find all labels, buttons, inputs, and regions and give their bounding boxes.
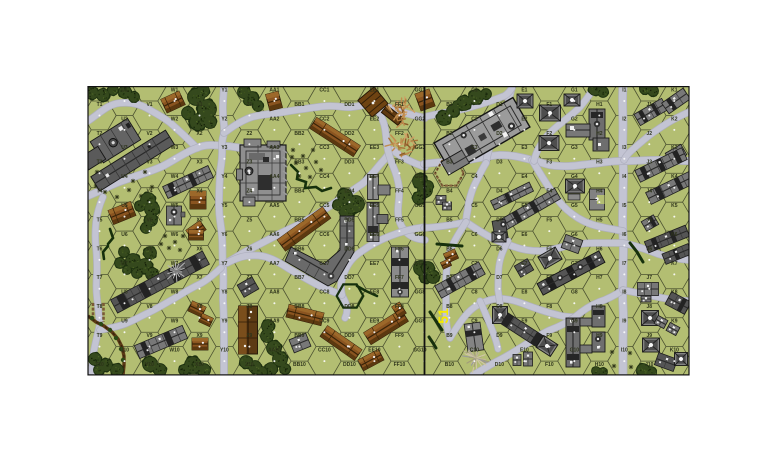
svg-text:AA8: AA8 <box>269 290 279 296</box>
svg-text:B6: B6 <box>446 246 453 252</box>
svg-text:W10: W10 <box>169 348 180 354</box>
svg-text:CC3: CC3 <box>319 145 329 151</box>
svg-text:EE8: EE8 <box>370 290 380 296</box>
svg-text:E5: E5 <box>521 203 527 209</box>
svg-text:Z4: Z4 <box>246 189 252 195</box>
svg-text:U5: U5 <box>121 203 128 209</box>
svg-text:EE4: EE4 <box>370 174 380 180</box>
svg-text:FF10: FF10 <box>394 362 406 368</box>
svg-text:X3: X3 <box>196 160 202 166</box>
svg-text:EE9: EE9 <box>370 319 380 325</box>
svg-text:U1: U1 <box>121 87 128 93</box>
svg-text:FF5: FF5 <box>395 218 404 224</box>
svg-text:Z1: Z1 <box>246 102 252 108</box>
svg-text:DD9: DD9 <box>344 333 354 339</box>
svg-text:E1: E1 <box>521 87 527 93</box>
svg-text:K2: K2 <box>671 116 678 122</box>
svg-text:E8: E8 <box>521 290 527 296</box>
svg-text:I8: I8 <box>622 290 626 296</box>
svg-text:AA10: AA10 <box>268 348 281 354</box>
svg-text:FF3: FF3 <box>395 160 404 166</box>
svg-text:F5: F5 <box>546 218 552 224</box>
svg-text:E10: E10 <box>520 348 529 354</box>
svg-text:BB9: BB9 <box>294 333 304 339</box>
svg-text:V5: V5 <box>146 218 152 224</box>
svg-text:D5: D5 <box>496 218 503 224</box>
svg-text:E6: E6 <box>521 232 527 238</box>
svg-text:EE3: EE3 <box>370 145 380 151</box>
svg-text:Y3: Y3 <box>221 145 227 151</box>
svg-text:G10: G10 <box>570 348 580 354</box>
svg-text:T2: T2 <box>97 131 103 137</box>
svg-text:U8: U8 <box>121 290 128 296</box>
svg-text:BB3: BB3 <box>294 160 304 166</box>
svg-text:W3: W3 <box>171 145 179 151</box>
svg-text:AA5: AA5 <box>269 203 279 209</box>
svg-text:I3: I3 <box>622 145 626 151</box>
svg-text:W7: W7 <box>171 261 179 267</box>
svg-text:T3: T3 <box>97 160 103 166</box>
svg-text:G6: G6 <box>571 232 578 238</box>
svg-text:X7: X7 <box>196 275 202 281</box>
svg-text:T5: T5 <box>97 218 103 224</box>
svg-text:F9: F9 <box>546 333 552 339</box>
svg-text:J6: J6 <box>647 246 653 252</box>
svg-text:D9: D9 <box>496 333 503 339</box>
svg-text:AA1: AA1 <box>269 87 279 93</box>
svg-text:F8: F8 <box>546 304 552 310</box>
svg-text:H3: H3 <box>596 160 603 166</box>
svg-text:I5: I5 <box>622 203 626 209</box>
svg-text:E7: E7 <box>521 261 527 267</box>
svg-text:Y6: Y6 <box>221 232 227 238</box>
svg-text:X4: X4 <box>196 189 202 195</box>
svg-text:K4: K4 <box>671 174 678 180</box>
svg-text:U7: U7 <box>121 261 128 267</box>
svg-text:EE2: EE2 <box>370 116 380 122</box>
svg-text:T1: T1 <box>97 102 103 108</box>
svg-text:BB7: BB7 <box>294 275 304 281</box>
svg-text:K1: K1 <box>671 87 678 93</box>
svg-text:DD5: DD5 <box>344 218 354 224</box>
svg-text:C9: C9 <box>471 319 478 325</box>
svg-text:K9: K9 <box>671 319 678 325</box>
svg-text:K5: K5 <box>671 203 678 209</box>
svg-text:Y10: Y10 <box>220 348 229 354</box>
svg-text:Z6: Z6 <box>246 246 252 252</box>
svg-text:D6: D6 <box>496 246 503 252</box>
svg-text:X5: X5 <box>196 218 202 224</box>
svg-text:Y8: Y8 <box>221 290 227 296</box>
svg-text:W9: W9 <box>171 319 179 325</box>
svg-text:CC1: CC1 <box>319 87 329 93</box>
svg-text:U4: U4 <box>121 174 128 180</box>
svg-text:G7: G7 <box>571 261 578 267</box>
svg-text:C2: C2 <box>471 116 478 122</box>
svg-text:EE5: EE5 <box>370 203 380 209</box>
svg-text:H5: H5 <box>596 218 603 224</box>
svg-text:BB10: BB10 <box>293 362 306 368</box>
svg-text:T7: T7 <box>97 275 103 281</box>
svg-text:V1: V1 <box>146 102 152 108</box>
svg-text:I6: I6 <box>622 232 626 238</box>
svg-text:K10: K10 <box>670 348 679 354</box>
svg-text:U10: U10 <box>120 348 129 354</box>
svg-text:V8: V8 <box>146 304 152 310</box>
svg-text:K6: K6 <box>671 232 678 238</box>
svg-text:CC5: CC5 <box>319 203 329 209</box>
svg-text:C6: C6 <box>471 232 478 238</box>
svg-text:DD6: DD6 <box>344 246 354 252</box>
svg-text:T8: T8 <box>97 304 103 310</box>
svg-text:I7: I7 <box>622 261 626 267</box>
svg-text:G9: G9 <box>571 319 578 325</box>
svg-text:Y5: Y5 <box>221 203 227 209</box>
svg-text:H6: H6 <box>596 246 603 252</box>
svg-text:T10: T10 <box>95 362 104 368</box>
svg-text:W6: W6 <box>171 232 179 238</box>
svg-text:H8: H8 <box>596 304 603 310</box>
svg-text:B3: B3 <box>446 160 453 166</box>
svg-text:H4: H4 <box>596 189 603 195</box>
svg-text:E9: E9 <box>521 319 527 325</box>
svg-text:AA3: AA3 <box>269 145 279 151</box>
svg-text:J3: J3 <box>647 160 653 166</box>
svg-text:W8: W8 <box>171 290 179 296</box>
svg-text:V3: V3 <box>146 160 152 166</box>
svg-text:CC9: CC9 <box>319 319 329 325</box>
svg-text:DD7: DD7 <box>344 275 354 281</box>
svg-text:K7: K7 <box>671 261 678 267</box>
svg-text:Y2: Y2 <box>221 116 227 122</box>
svg-text:J1: J1 <box>647 102 653 108</box>
svg-text:F7: F7 <box>546 275 552 281</box>
svg-text:CC10: CC10 <box>318 348 331 354</box>
svg-text:F1: F1 <box>546 102 552 108</box>
svg-text:C10: C10 <box>470 348 479 354</box>
svg-text:B5: B5 <box>446 218 453 224</box>
svg-text:H1: H1 <box>596 102 603 108</box>
svg-text:V4: V4 <box>146 189 152 195</box>
svg-text:B9: B9 <box>446 333 453 339</box>
svg-text:FF7: FF7 <box>395 275 404 281</box>
svg-text:Z2: Z2 <box>246 131 252 137</box>
svg-text:CC7: CC7 <box>319 261 329 267</box>
svg-text:Z8: Z8 <box>246 304 252 310</box>
svg-text:K8: K8 <box>671 290 678 296</box>
svg-text:U6: U6 <box>121 232 128 238</box>
svg-text:BB4: BB4 <box>294 189 304 195</box>
svg-text:AA2: AA2 <box>269 116 279 122</box>
svg-text:C8: C8 <box>471 290 478 296</box>
svg-text:F3: F3 <box>546 160 552 166</box>
svg-text:DD10: DD10 <box>343 362 356 368</box>
svg-text:FF6: FF6 <box>395 246 404 252</box>
svg-text:J4: J4 <box>647 189 653 195</box>
svg-text:EE7: EE7 <box>370 261 380 267</box>
svg-text:X6: X6 <box>196 246 202 252</box>
svg-text:J8: J8 <box>647 304 653 310</box>
svg-text:AA7: AA7 <box>269 261 279 267</box>
svg-text:EE10: EE10 <box>368 348 380 354</box>
svg-text:CC8: CC8 <box>319 290 329 296</box>
svg-text:B10: B10 <box>445 362 454 368</box>
svg-text:W5: W5 <box>171 203 179 209</box>
svg-text:D3: D3 <box>496 160 503 166</box>
svg-text:G2: G2 <box>571 116 578 122</box>
svg-text:BB1: BB1 <box>294 102 304 108</box>
svg-text:B2: B2 <box>446 131 453 137</box>
svg-text:C4: C4 <box>471 174 478 180</box>
svg-text:U2: U2 <box>121 116 128 122</box>
svg-text:Z7: Z7 <box>246 275 252 281</box>
svg-text:I4: I4 <box>622 174 626 180</box>
svg-text:CC4: CC4 <box>319 174 329 180</box>
svg-text:Z5: Z5 <box>246 218 252 224</box>
svg-text:G4: G4 <box>571 174 578 180</box>
svg-text:EE6: EE6 <box>370 232 380 238</box>
svg-text:D4: D4 <box>496 189 503 195</box>
svg-text:J2: J2 <box>647 131 653 137</box>
svg-text:Y4: Y4 <box>221 174 227 180</box>
svg-text:DD4: DD4 <box>344 189 354 195</box>
svg-text:D1: D1 <box>496 102 503 108</box>
svg-text:E2: E2 <box>521 116 527 122</box>
svg-text:C3: C3 <box>471 145 478 151</box>
svg-text:B7: B7 <box>446 275 453 281</box>
svg-text:Y9: Y9 <box>221 319 227 325</box>
svg-text:G1: G1 <box>571 87 578 93</box>
svg-text:H7: H7 <box>596 275 603 281</box>
svg-text:V9: V9 <box>146 333 152 339</box>
svg-text:DD8: DD8 <box>344 304 354 310</box>
svg-text:C7: C7 <box>471 261 478 267</box>
svg-text:FF9: FF9 <box>395 333 404 339</box>
svg-text:AA6: AA6 <box>269 232 279 238</box>
svg-text:DD1: DD1 <box>344 102 354 108</box>
svg-text:I1: I1 <box>622 87 626 93</box>
svg-text:V7: V7 <box>146 275 152 281</box>
svg-text:AA9: AA9 <box>269 319 279 325</box>
svg-text:I2: I2 <box>622 116 626 122</box>
svg-text:FF2: FF2 <box>395 131 404 137</box>
svg-text:F2: F2 <box>546 131 552 137</box>
svg-text:CC6: CC6 <box>319 232 329 238</box>
svg-text:C1: C1 <box>471 87 478 93</box>
svg-text:T6: T6 <box>97 246 103 252</box>
svg-text:AA4: AA4 <box>269 174 279 180</box>
svg-text:J9: J9 <box>647 333 653 339</box>
svg-text:C5: C5 <box>471 203 478 209</box>
svg-text:FF4: FF4 <box>395 189 404 195</box>
svg-text:H10: H10 <box>595 362 604 368</box>
svg-text:W1: W1 <box>171 87 179 93</box>
svg-text:X1: X1 <box>196 102 202 108</box>
svg-text:DD2: DD2 <box>344 131 354 137</box>
svg-text:E3: E3 <box>521 145 527 151</box>
svg-text:E4: E4 <box>521 174 527 180</box>
svg-text:V10: V10 <box>145 362 154 368</box>
svg-text:FF1: FF1 <box>395 102 404 108</box>
svg-text:Z10: Z10 <box>245 362 254 368</box>
svg-text:Z9: Z9 <box>246 333 252 339</box>
svg-text:V6: V6 <box>146 246 152 252</box>
svg-text:U9: U9 <box>121 319 128 325</box>
svg-text:F10: F10 <box>545 362 554 368</box>
svg-text:FF8: FF8 <box>395 304 404 310</box>
svg-text:EE1: EE1 <box>370 87 380 93</box>
svg-text:X2: X2 <box>196 131 202 137</box>
svg-text:W2: W2 <box>171 116 179 122</box>
svg-text:F6: F6 <box>546 246 552 252</box>
svg-text:D10: D10 <box>495 362 504 368</box>
svg-text:I9: I9 <box>622 319 626 325</box>
svg-text:BB8: BB8 <box>294 304 304 310</box>
svg-text:Y1: Y1 <box>221 87 227 93</box>
svg-text:BB5: BB5 <box>294 218 304 224</box>
svg-text:G8: G8 <box>571 290 578 296</box>
svg-text:G5: G5 <box>571 203 578 209</box>
svg-text:B4: B4 <box>446 189 453 195</box>
svg-text:F4: F4 <box>546 189 552 195</box>
svg-text:G3: G3 <box>571 145 578 151</box>
svg-text:X9: X9 <box>196 333 202 339</box>
svg-text:DD3: DD3 <box>344 160 354 166</box>
svg-text:CC2: CC2 <box>319 116 329 122</box>
svg-text:V2: V2 <box>146 131 152 137</box>
svg-text:J5: J5 <box>647 218 653 224</box>
svg-text:BB2: BB2 <box>294 131 304 137</box>
svg-text:H9: H9 <box>596 333 603 339</box>
svg-text:BB6: BB6 <box>294 246 304 252</box>
svg-text:J7: J7 <box>647 275 653 281</box>
svg-text:D8: D8 <box>496 304 503 310</box>
svg-text:B1: B1 <box>446 102 453 108</box>
svg-text:I10: I10 <box>621 348 628 354</box>
svg-text:J10: J10 <box>645 362 654 368</box>
svg-text:Y7: Y7 <box>221 261 227 267</box>
svg-text:W4: W4 <box>171 174 179 180</box>
svg-text:D2: D2 <box>496 131 503 137</box>
svg-text:Z3: Z3 <box>246 160 252 166</box>
svg-text:D7: D7 <box>496 275 503 281</box>
svg-text:K3: K3 <box>671 145 678 151</box>
svg-text:T4: T4 <box>97 189 103 195</box>
svg-text:51: 51 <box>435 308 451 324</box>
svg-text:U3: U3 <box>121 145 128 151</box>
svg-text:X10: X10 <box>195 362 204 368</box>
svg-text:H2: H2 <box>596 131 603 137</box>
svg-text:X8: X8 <box>196 304 202 310</box>
svg-text:T9: T9 <box>97 333 103 339</box>
